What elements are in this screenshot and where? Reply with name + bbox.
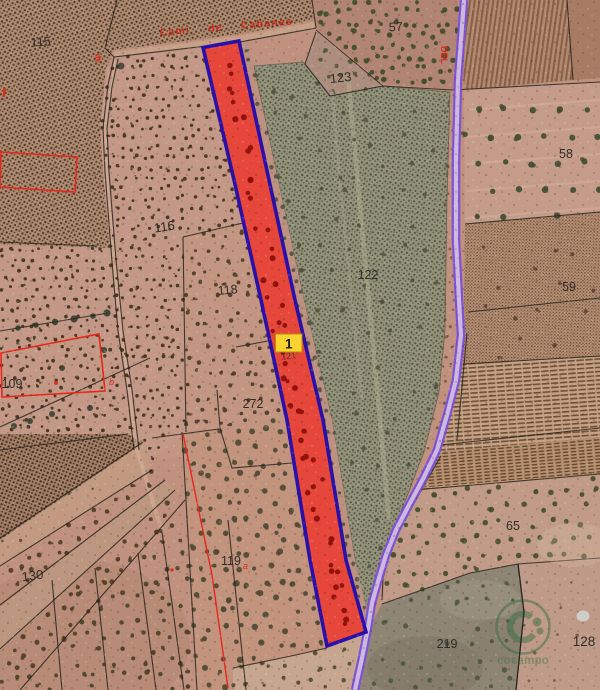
svg-text:115: 115 [30, 34, 51, 49]
svg-text:116: 116 [153, 218, 176, 236]
svg-text:123: 123 [329, 69, 352, 86]
svg-text:1: 1 [285, 337, 293, 352]
svg-text:128: 128 [573, 634, 596, 649]
svg-text:58: 58 [559, 147, 573, 161]
svg-text:130: 130 [21, 567, 44, 585]
svg-text:65: 65 [506, 519, 520, 533]
svg-text:57: 57 [388, 20, 403, 35]
svg-text:119: 119 [221, 554, 241, 568]
svg-text:59: 59 [562, 280, 576, 294]
svg-text:109: 109 [2, 377, 23, 391]
svg-text:219: 219 [437, 637, 458, 651]
svg-text:cocampo: cocampo [497, 655, 549, 667]
svg-text:118: 118 [217, 282, 238, 298]
svg-text:122: 122 [358, 268, 379, 282]
svg-text:272: 272 [243, 397, 264, 411]
